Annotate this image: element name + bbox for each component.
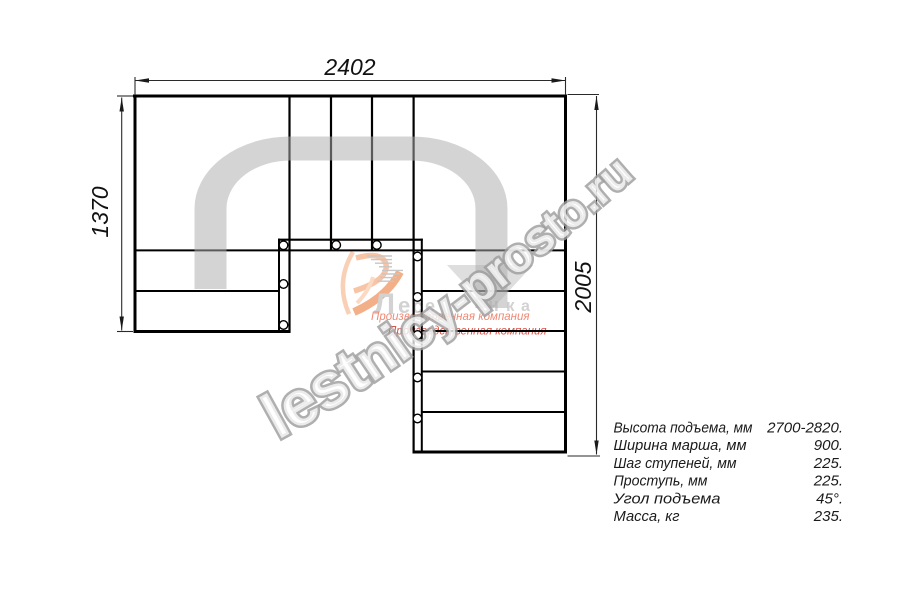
svg-text:1370: 1370 — [87, 186, 113, 237]
svg-text:225.: 225. — [813, 473, 843, 490]
svg-text:Ширина марша, мм: Ширина марша, мм — [614, 437, 747, 454]
svg-text:Масса, кг: Масса, кг — [614, 508, 681, 525]
svg-text:Шаг ступеней, мм: Шаг ступеней, мм — [614, 455, 737, 472]
svg-text:2402: 2402 — [323, 54, 375, 80]
svg-text:Высота подъема, мм: Высота подъема, мм — [614, 420, 753, 437]
svg-text:235.: 235. — [813, 508, 843, 525]
svg-text:900.: 900. — [814, 437, 843, 454]
svg-text:225.: 225. — [813, 455, 843, 472]
svg-text:45°.: 45°. — [816, 490, 843, 507]
svg-text:2700-2820.: 2700-2820. — [766, 420, 843, 437]
svg-text:Проступь, мм: Проступь, мм — [614, 473, 708, 490]
svg-text:2005: 2005 — [570, 261, 596, 313]
svg-text:Угол подъема: Угол подъема — [612, 490, 720, 507]
